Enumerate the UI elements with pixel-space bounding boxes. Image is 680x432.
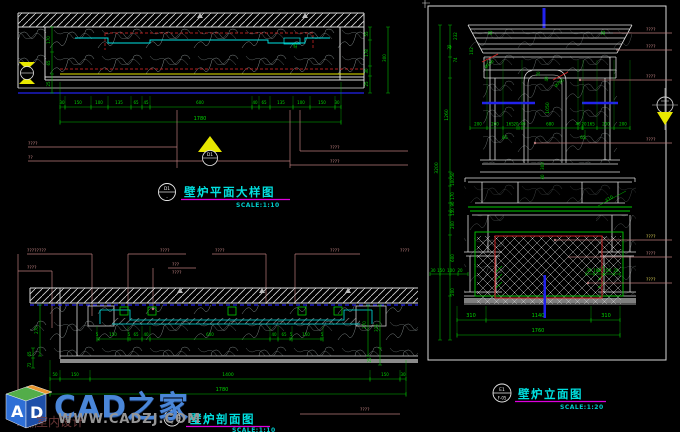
leader-label: ???? [646, 277, 656, 283]
dim-label: 1400 [222, 372, 234, 378]
dim-label: 135 [277, 100, 285, 105]
dim-label: 25 [364, 81, 369, 87]
dim-label: 50 [450, 172, 455, 178]
leader-label: ???????? [27, 248, 47, 254]
dim-label: 30 [334, 100, 340, 105]
dim-label: 150 [603, 268, 611, 273]
watermark-url: WWW.CADZJ.COM [58, 412, 201, 427]
leader-label: ???? [28, 141, 38, 147]
dim-label: 600 [450, 254, 455, 262]
dim-label: 40 [520, 122, 526, 127]
leader-label: ???? [172, 270, 182, 276]
dim-label: 150 [109, 332, 117, 337]
leader-label: ??? [172, 262, 180, 268]
dim-label: 50 [52, 372, 58, 377]
dim-label: 55 [364, 31, 369, 37]
dim-label: 40 [143, 332, 149, 337]
dim-label: 1050 [545, 102, 551, 114]
dim-label: 65 [281, 332, 287, 337]
leader-label: ???? [215, 248, 225, 254]
dim-label: 20 [513, 122, 519, 127]
dim-label: 232 [453, 32, 458, 40]
dim-label: 20 [581, 122, 587, 127]
dim-label: 35 [601, 30, 606, 36]
dim-label: 150 [437, 268, 445, 273]
dim-total: 3200 [434, 162, 440, 174]
leader-label: ???? [646, 234, 656, 240]
dim-label: 100 [297, 100, 305, 105]
section-linework [30, 288, 418, 363]
leader-label: ???? [400, 248, 410, 254]
dim-label: 30 [400, 372, 406, 377]
leader-label: ???? [160, 248, 170, 254]
cube-letter-a: A [11, 402, 24, 421]
dim-label: 70 [536, 71, 541, 77]
dim-label: 30 [364, 68, 369, 74]
plan-view: 30 150 100 135 65 45 600 40 65 135 100 1… [0, 0, 420, 212]
dim-label: 170 [46, 36, 51, 44]
cad-canvas: 30 150 100 135 65 45 600 40 65 135 100 1… [0, 0, 680, 432]
dim-label: 5 [290, 332, 293, 337]
dim-label: 270 [362, 321, 367, 329]
leader-label: ???? [646, 251, 656, 257]
dim-label: 20 [613, 268, 619, 273]
view-scale: SCALE:1:10 [236, 202, 280, 209]
dim-label: 100 [450, 178, 455, 186]
dim-label: 600 [206, 332, 214, 337]
dim-label: 600 [196, 100, 204, 105]
plan-leaders [28, 110, 408, 168]
dim-label: 72 [27, 362, 32, 368]
leader-label: ???? [646, 137, 656, 143]
dim-label: 65 [261, 100, 267, 105]
plan-linework [18, 13, 364, 93]
dim-label: 35 [488, 30, 493, 36]
dim-label: 310 [466, 313, 476, 319]
dim-label: 25 [46, 81, 51, 87]
dim-label: 325 [374, 324, 379, 332]
elevation-datum-marker [652, 88, 678, 130]
dim-label: 680 [546, 122, 554, 127]
dim-label: 150 [381, 372, 389, 377]
dim-label: 100 [447, 268, 455, 273]
dim-label: 90 [450, 201, 455, 207]
dim-label: 30 [430, 268, 436, 273]
dim-label: 40 [271, 332, 277, 337]
dim-label: 150 [302, 332, 310, 337]
dim-label: 170 [450, 192, 455, 200]
dim-label: 178 [364, 49, 369, 57]
dim-label: 25 [367, 357, 372, 363]
leader-label: ???? [646, 27, 656, 33]
dim-label: 5 [128, 332, 131, 337]
dim-label: 1140 [532, 313, 545, 319]
dim-total: 1780 [194, 116, 207, 122]
dim-total: 1760 [532, 328, 545, 334]
view-bubble-bottom: - [166, 196, 168, 201]
dim-label: 135 [115, 100, 123, 105]
dim-label: 150 [450, 208, 455, 216]
dim-label: 40 [575, 122, 581, 127]
watermark: A D CAD之家 室内设计 WWW.CADZJ.COM [2, 384, 232, 432]
dim-label: 165 [587, 122, 595, 127]
view-scale: SCALE:1:10 [232, 427, 276, 432]
dim-label: 310 [601, 313, 611, 319]
dim-label: 5 [321, 332, 324, 337]
view-title: 壁炉立面图 [518, 387, 583, 401]
dim-label: 100 [593, 268, 601, 273]
dim-label: 65 [133, 100, 139, 105]
plan-title-block: D1 - 壁炉平面大样图 SCALE:1:10 [159, 184, 291, 210]
dim-label: 1260 [444, 109, 450, 121]
leader-label: ???? [27, 265, 37, 271]
dim-label: 5 [96, 332, 99, 337]
view-bubble-top: E1 [499, 387, 505, 393]
view-bubble-top: D1 [164, 186, 170, 192]
leader-label: ???? [330, 248, 340, 254]
dim-label: 30 [59, 100, 65, 105]
dim-label: 200 [619, 122, 627, 127]
elevation-view: 200 200 165 20 40 680 40 20 165 200 200 … [420, 0, 680, 432]
dim-label: 74 [453, 57, 458, 63]
dim-label: 100 [95, 100, 103, 105]
leader-label: ?? [28, 155, 33, 161]
leader-label: ???? [330, 159, 340, 165]
dim-label: 200 [602, 122, 610, 127]
view-title: 壁炉平面大样图 [184, 185, 275, 199]
leader-label: ???? [360, 407, 370, 413]
dim-label: 30 [586, 268, 592, 273]
dim-label: 300 [382, 54, 387, 62]
dim-label: 200 [450, 221, 455, 229]
dim-label: 40 [252, 100, 258, 105]
dim-label: 40 [540, 174, 545, 180]
dim-label: 65 [27, 351, 32, 357]
dim-label: 200 [491, 122, 499, 127]
dim-label: 150 [74, 100, 82, 105]
dim-label: 65 [580, 135, 586, 141]
dim-label: 45 [143, 100, 149, 105]
dim-label: 200 [474, 122, 482, 127]
dim-label: 270 [34, 326, 39, 334]
leader-label: ???? [330, 145, 340, 151]
dim-label: 150 [318, 100, 326, 105]
dim-label: 45 [293, 43, 298, 49]
dim-label: 200 [450, 288, 455, 296]
dim-label: 300 [540, 162, 545, 170]
dim-label: 22 [447, 44, 452, 50]
dim-label: 150 [71, 372, 79, 377]
view-bubble-bottom: F-05 [498, 396, 507, 401]
dim-label: 102 [469, 47, 474, 55]
leader-label: ???? [646, 74, 656, 80]
dim-label: 65 [133, 332, 139, 337]
dim-label: 20 [457, 268, 463, 273]
elevation-title-block: E1 F-05 壁炉立面图 SCALE:1:20 [493, 384, 606, 411]
dim-label: 40 [544, 76, 549, 82]
dim-label: 65 [502, 135, 508, 141]
dim-label: 65 [46, 60, 51, 66]
marker-label: D1 [207, 152, 213, 158]
leader-label: ???? [646, 44, 656, 50]
view-scale: SCALE:1:20 [560, 404, 604, 411]
